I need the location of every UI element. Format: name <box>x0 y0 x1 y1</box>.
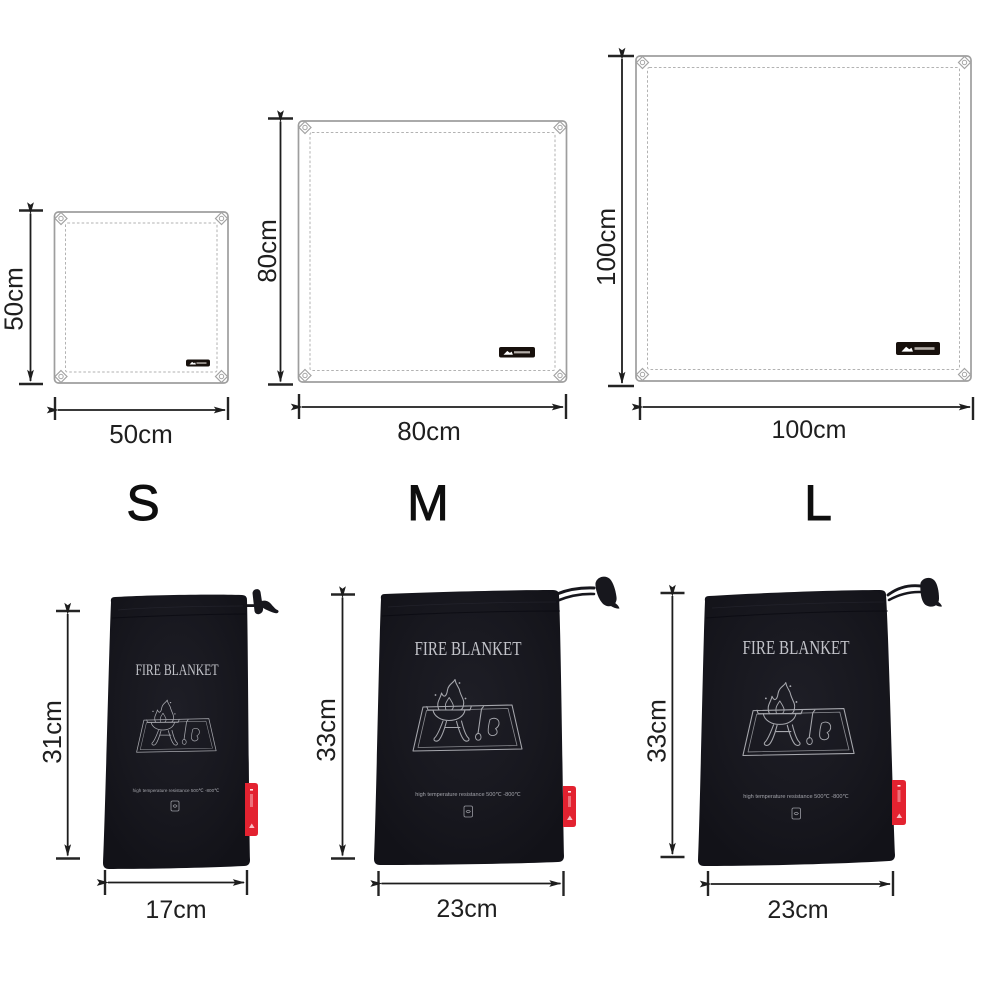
svg-text:23cm: 23cm <box>436 895 497 923</box>
svg-text:high temperature resistance: high temperature resistance 500℃ -800℃ <box>415 792 521 798</box>
svg-text:S: S <box>126 475 159 531</box>
svg-text:FIRE BLANKET: FIRE BLANKET <box>743 638 850 659</box>
svg-text:33cm: 33cm <box>642 699 672 763</box>
svg-text:high temperature resistance: high temperature resistance 500℃ -800℃ <box>133 788 221 793</box>
svg-text:50cm: 50cm <box>0 267 29 331</box>
svg-text:17cm: 17cm <box>145 896 206 924</box>
svg-text:50cm: 50cm <box>109 419 173 449</box>
svg-text:23cm: 23cm <box>767 896 828 924</box>
svg-text:FIRE BLANKET: FIRE BLANKET <box>415 639 522 660</box>
svg-text:80cm: 80cm <box>397 416 461 446</box>
svg-text:80cm: 80cm <box>252 219 282 283</box>
svg-text:31cm: 31cm <box>37 700 67 764</box>
svg-text:100cm: 100cm <box>591 208 621 286</box>
svg-text:33cm: 33cm <box>311 698 341 762</box>
svg-text:FIRE BLANKET: FIRE BLANKET <box>136 662 219 679</box>
svg-text:M: M <box>407 475 449 531</box>
svg-text:100cm: 100cm <box>771 416 846 444</box>
svg-text:high temperature resistance: high temperature resistance 500℃ -800℃ <box>743 794 849 800</box>
svg-text:L: L <box>804 475 832 531</box>
